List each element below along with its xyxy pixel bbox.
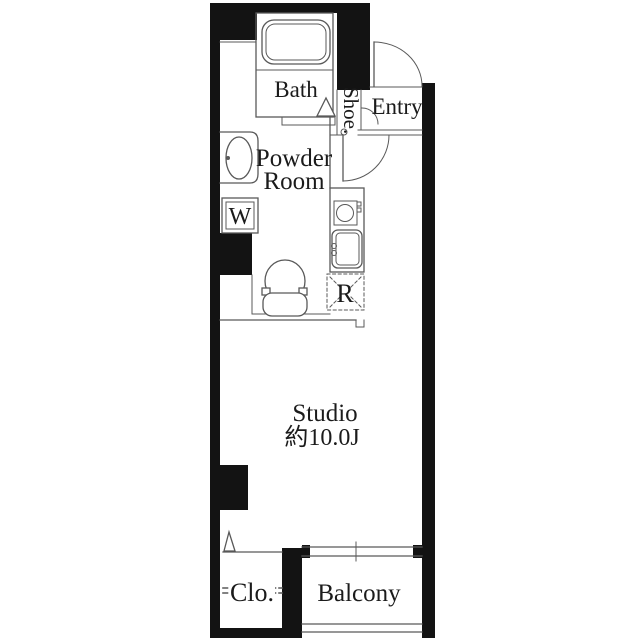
studio-area-label: 約10.0J — [284, 424, 359, 451]
closet-door-triangle-icon — [224, 532, 235, 551]
closet-balcony-divider-wall — [282, 548, 302, 638]
bath-door-triangle-icon — [317, 98, 335, 116]
closet-label: Clo. — [230, 578, 274, 607]
kitchen-end-notch — [356, 320, 364, 327]
washbasin-icon — [220, 132, 258, 183]
balcony-edge — [302, 624, 422, 632]
studio-left-wall-block — [220, 465, 248, 510]
studio-label: Studio — [292, 400, 357, 427]
bathtub-icon — [262, 20, 330, 64]
powder-room-wall-block — [210, 233, 252, 275]
bath-entry-wall — [337, 3, 370, 90]
washing-machine-label: W — [229, 204, 252, 230]
floor-plan-canvas: Bath Entry Shoe. Powder Room W R Studio … — [0, 0, 640, 639]
right-wall — [422, 83, 435, 638]
powder-room-label-line2: Room — [263, 168, 325, 195]
studio-room — [220, 320, 364, 327]
stove-icon — [334, 201, 361, 225]
entry-door-arc-icon — [374, 42, 422, 86]
entry-label: Entry — [371, 94, 423, 119]
bath-sliding-door — [282, 117, 335, 125]
toilet-icon — [262, 260, 307, 316]
floor-plan: Bath Entry Shoe. Powder Room W R Studio … — [0, 0, 640, 639]
shoe-cabinet-label: Shoe. — [339, 87, 363, 134]
refrigerator-label: R — [336, 279, 354, 308]
left-wall — [210, 3, 220, 638]
balcony-window — [302, 542, 422, 561]
balcony-label: Balcony — [317, 580, 401, 607]
interior-door-arc-icon — [343, 135, 389, 181]
kitchen-sink-icon — [332, 230, 363, 268]
bath-label: Bath — [274, 77, 318, 102]
